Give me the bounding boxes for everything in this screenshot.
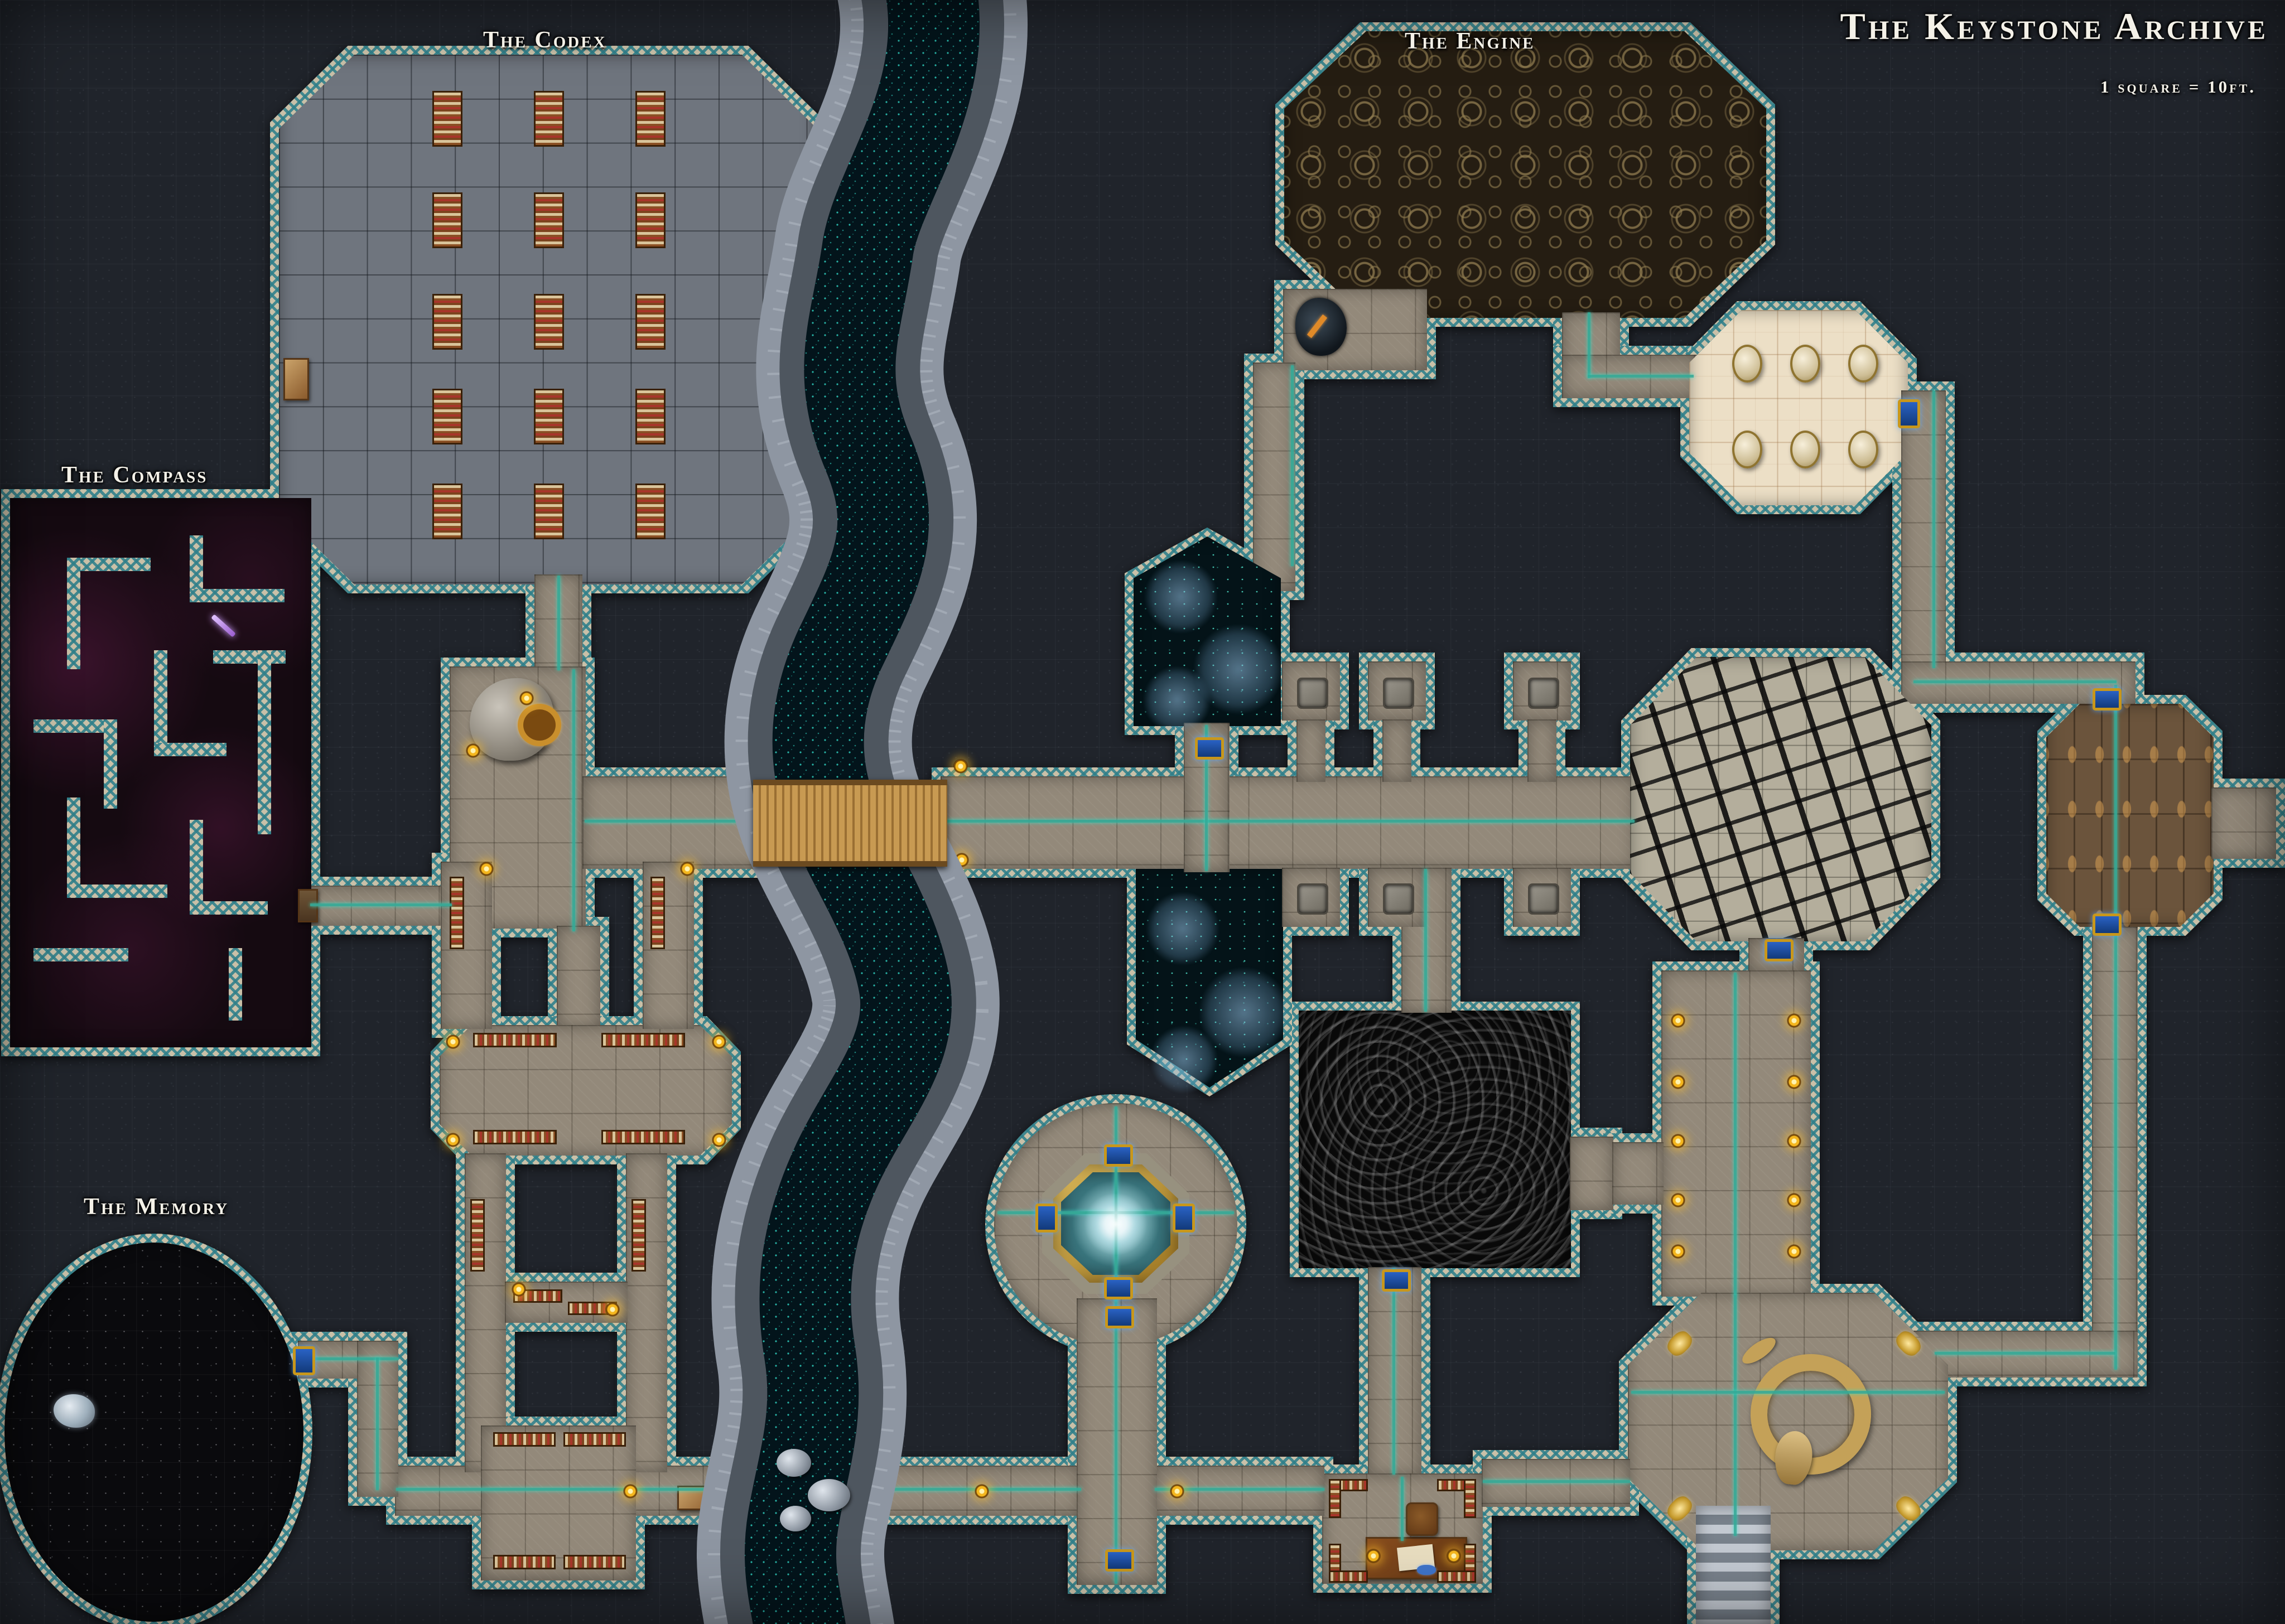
map-scale-note: 1 square = 10ft. xyxy=(2100,77,2256,97)
labels-layer: The Keystone Archive 1 square = 10ft. Th… xyxy=(0,0,2285,1624)
room-label-compass: The Compass xyxy=(61,462,208,489)
room-label-engine: The Engine xyxy=(1405,28,1535,55)
room-label-memory: The Memory xyxy=(84,1193,229,1220)
room-label-codex: The Codex xyxy=(483,27,607,54)
map-title: The Keystone Archive xyxy=(1840,4,2268,49)
dungeon-map: The Keystone Archive 1 square = 10ft. Th… xyxy=(0,0,2285,1624)
